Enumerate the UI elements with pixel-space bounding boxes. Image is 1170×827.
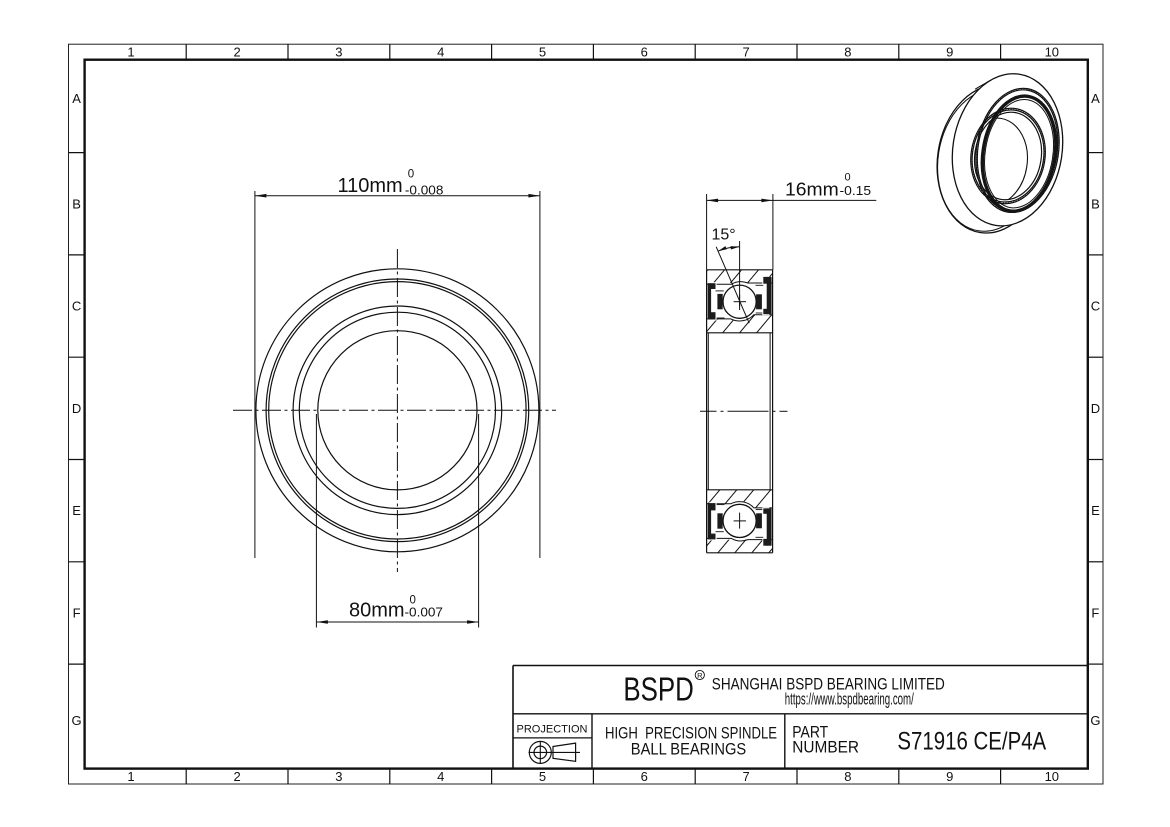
svg-text:5: 5 [539, 769, 546, 784]
svg-text:B: B [72, 196, 81, 211]
svg-text:8: 8 [844, 769, 851, 784]
svg-text:BSPD: BSPD [623, 670, 694, 707]
svg-text:F: F [1091, 606, 1099, 621]
svg-text:3: 3 [335, 769, 342, 784]
svg-text:7: 7 [742, 44, 749, 59]
svg-text:7: 7 [742, 769, 749, 784]
svg-text:A: A [72, 91, 81, 106]
svg-text:4: 4 [437, 44, 444, 59]
svg-text:1: 1 [127, 44, 134, 59]
svg-text:2: 2 [233, 44, 240, 59]
svg-text:B: B [1091, 196, 1100, 211]
svg-text:2: 2 [233, 769, 240, 784]
svg-text:D: D [1091, 401, 1100, 416]
svg-text:9: 9 [946, 44, 953, 59]
svg-text:NUMBER: NUMBER [792, 739, 859, 757]
svg-text:0: 0 [845, 172, 851, 184]
svg-text:110mm: 110mm [338, 175, 403, 197]
svg-text:A: A [1091, 91, 1100, 106]
svg-text:15°: 15° [712, 227, 736, 244]
svg-text:5: 5 [539, 44, 546, 59]
svg-text:G: G [71, 713, 81, 728]
svg-text:10: 10 [1045, 769, 1059, 784]
svg-text:10: 10 [1045, 44, 1059, 59]
svg-text:8: 8 [844, 44, 851, 59]
svg-text:E: E [1091, 503, 1100, 518]
svg-text:4: 4 [437, 769, 444, 784]
svg-text:16mm: 16mm [785, 180, 839, 200]
svg-text:-0.008: -0.008 [405, 183, 444, 198]
svg-text:3: 3 [335, 44, 342, 59]
svg-text:D: D [72, 401, 81, 416]
svg-text:S71916 CE/P4A: S71916 CE/P4A [897, 728, 1046, 756]
svg-text:C: C [72, 299, 81, 314]
svg-text:0: 0 [408, 169, 414, 181]
svg-text:6: 6 [641, 44, 648, 59]
svg-text:C: C [1091, 299, 1100, 314]
svg-text:6: 6 [641, 769, 648, 784]
svg-text:-0.15: -0.15 [840, 184, 872, 198]
svg-text:80mm: 80mm [349, 600, 405, 622]
svg-text:https://www.bspdbearing.com/: https://www.bspdbearing.com/ [785, 691, 914, 709]
svg-text:PROJECTION: PROJECTION [517, 723, 588, 735]
svg-text:R: R [697, 671, 703, 680]
svg-text:-0.007: -0.007 [405, 605, 444, 620]
svg-text:BALL BEARINGS: BALL BEARINGS [631, 741, 746, 759]
svg-text:1: 1 [127, 769, 134, 784]
svg-text:G: G [1090, 713, 1100, 728]
svg-text:F: F [73, 606, 81, 621]
svg-text:E: E [72, 503, 81, 518]
svg-text:9: 9 [946, 769, 953, 784]
